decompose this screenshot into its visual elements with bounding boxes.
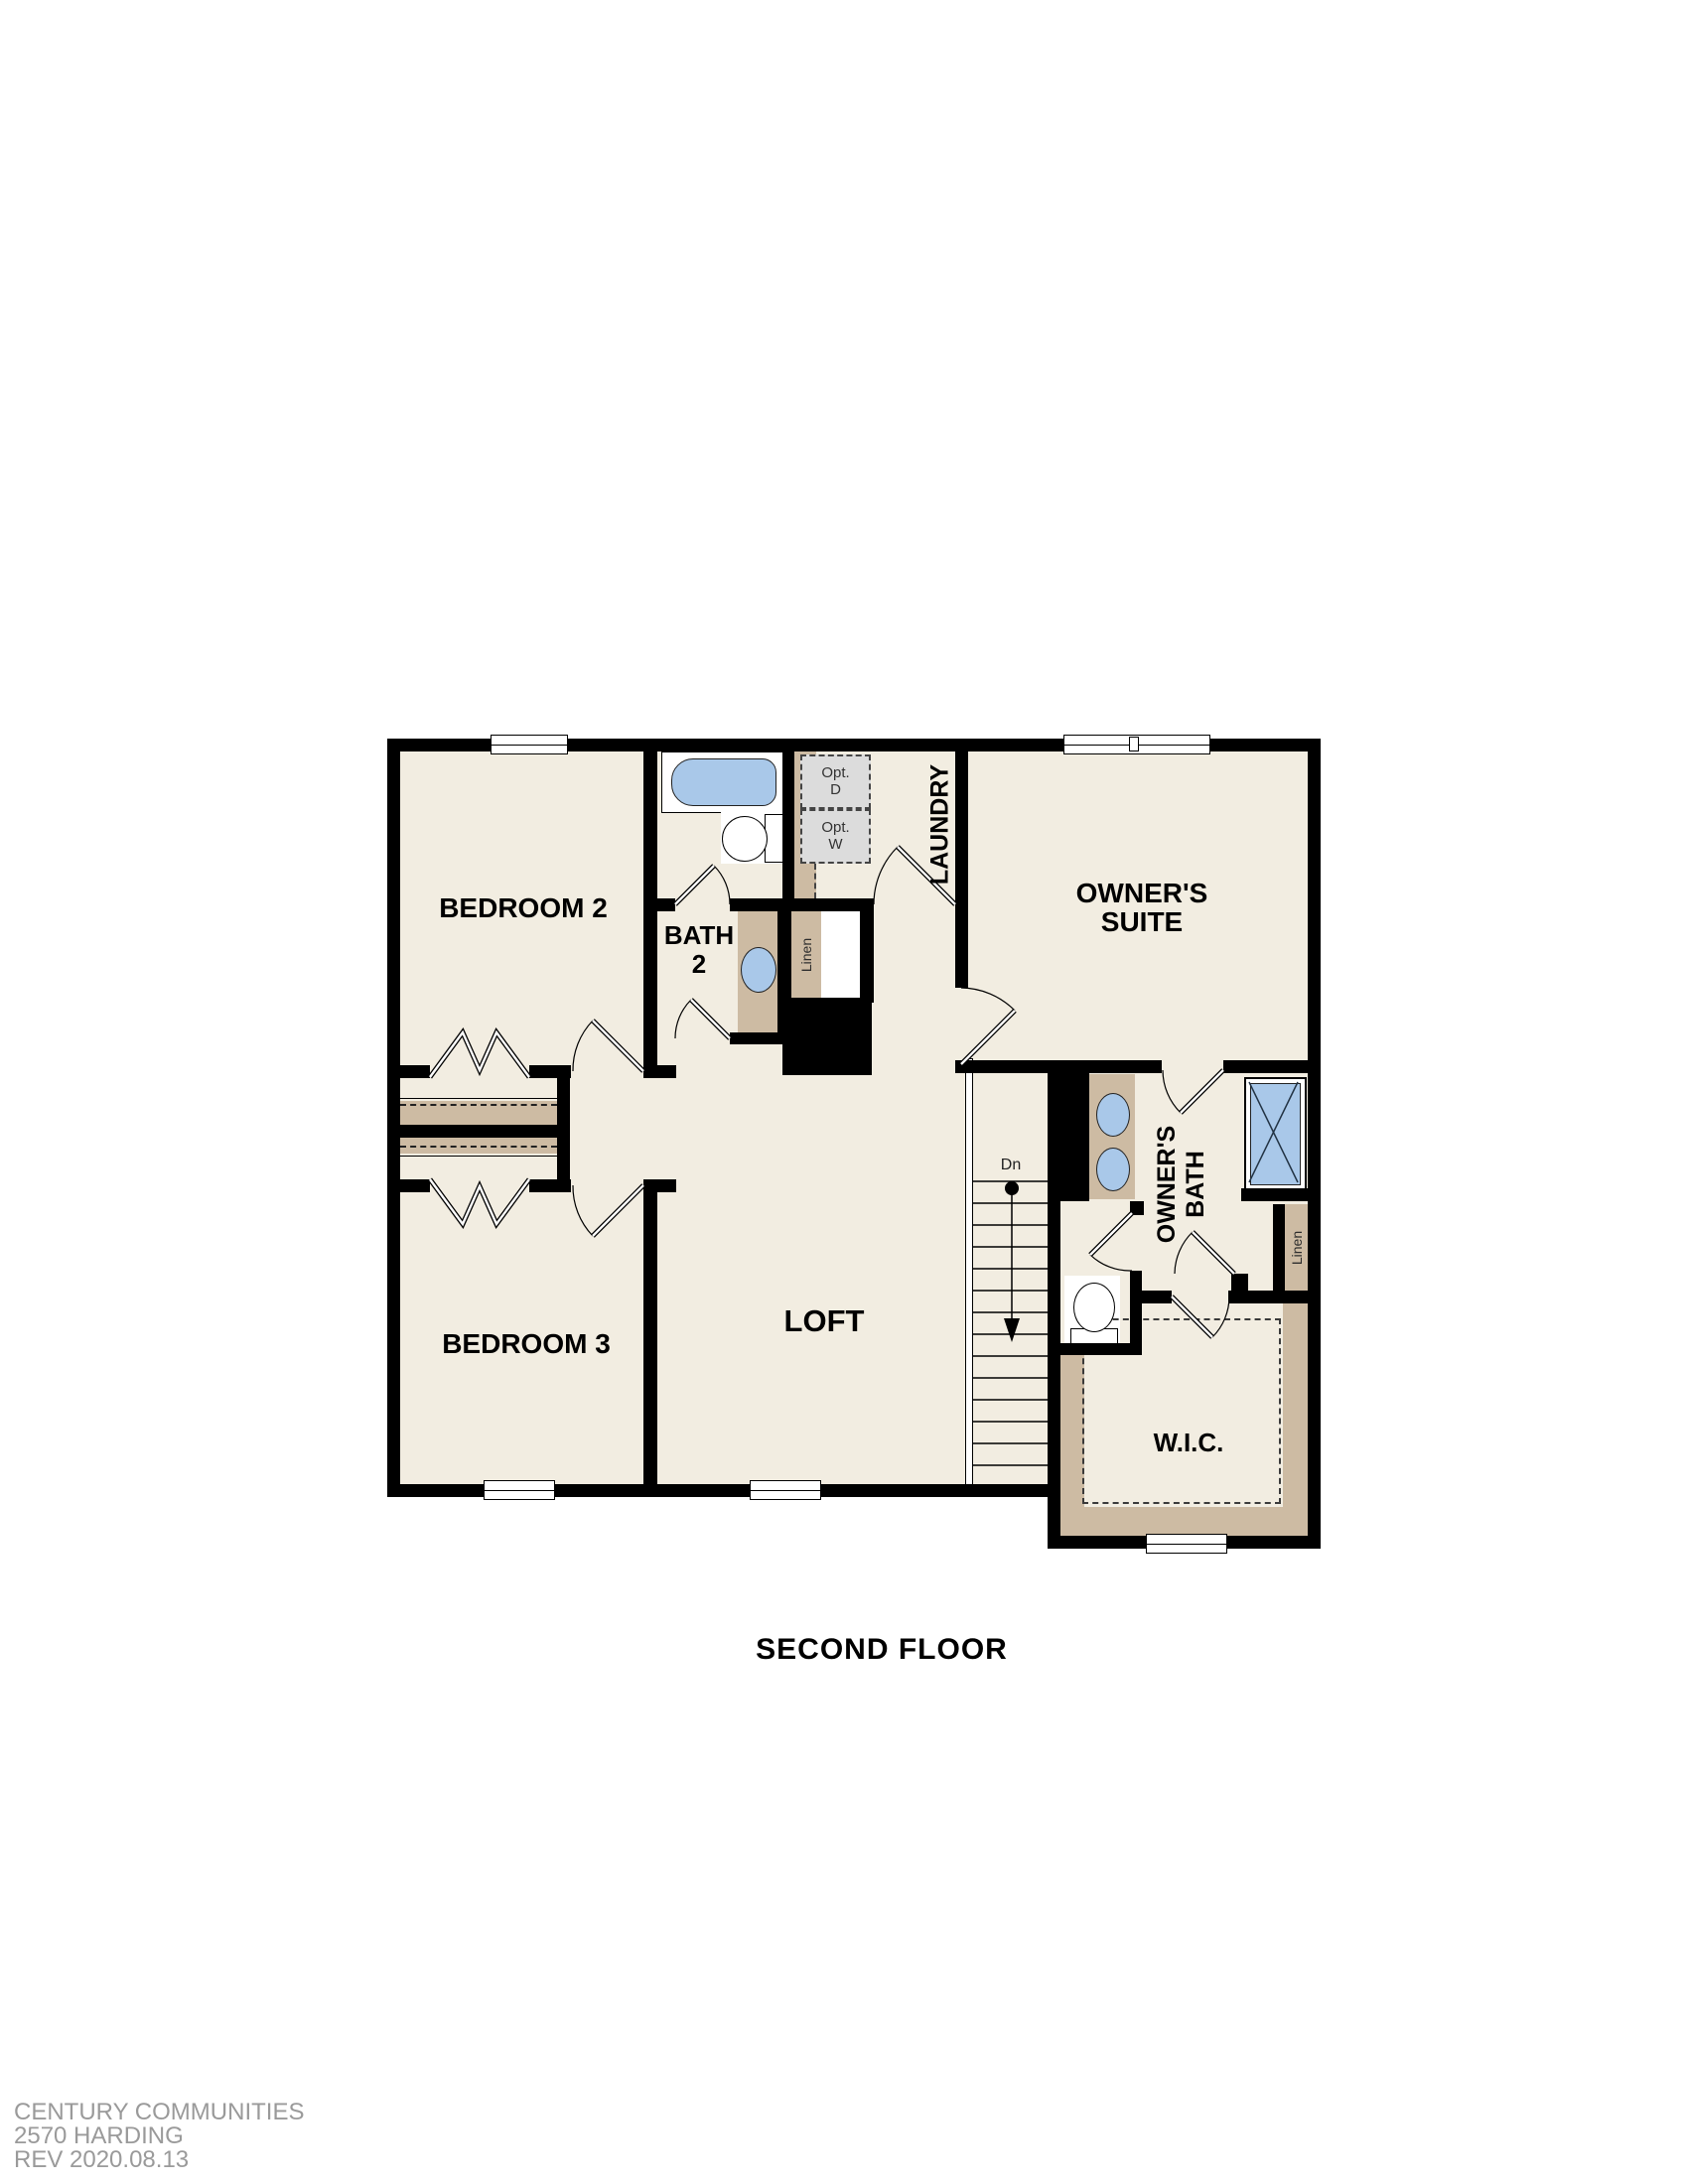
footer-builder: CENTURY COMMUNITIES bbox=[14, 2101, 304, 2124]
doors-and-stairs-overlay bbox=[0, 0, 1688, 2184]
shower-x-icon bbox=[1249, 1082, 1298, 1182]
footer-plan: 2570 HARDING bbox=[14, 2124, 304, 2148]
plan-title: SECOND FLOOR bbox=[683, 1633, 1080, 1667]
room-label-owners-bath: OWNER'S BATH bbox=[1153, 1100, 1210, 1269]
room-label-wic: W.I.C. bbox=[1089, 1428, 1288, 1458]
stair-down-arrow bbox=[1004, 1181, 1020, 1342]
room-label-owners-suite: OWNER'S SUITE bbox=[1062, 879, 1221, 936]
room-label-laundry: LAUNDRY bbox=[926, 746, 955, 904]
footer-info: CENTURY COMMUNITIES 2570 HARDING REV 202… bbox=[14, 2101, 304, 2172]
footer-revision: REV 2020.08.13 bbox=[14, 2148, 304, 2172]
room-label-bath2: BATH 2 bbox=[659, 921, 739, 979]
room-label-bedroom2: BEDROOM 2 bbox=[374, 892, 672, 924]
floor-plan-page: Opt. D Opt. W bbox=[0, 0, 1688, 2184]
room-label-bedroom3: BEDROOM 3 bbox=[377, 1328, 675, 1360]
stair-down-label: Dn bbox=[989, 1157, 1033, 1174]
closet-label-linen-owners: Linen bbox=[1289, 1203, 1305, 1293]
closet-label-linen-bath2: Linen bbox=[798, 910, 814, 1000]
room-label-loft: LOFT bbox=[725, 1303, 923, 1339]
